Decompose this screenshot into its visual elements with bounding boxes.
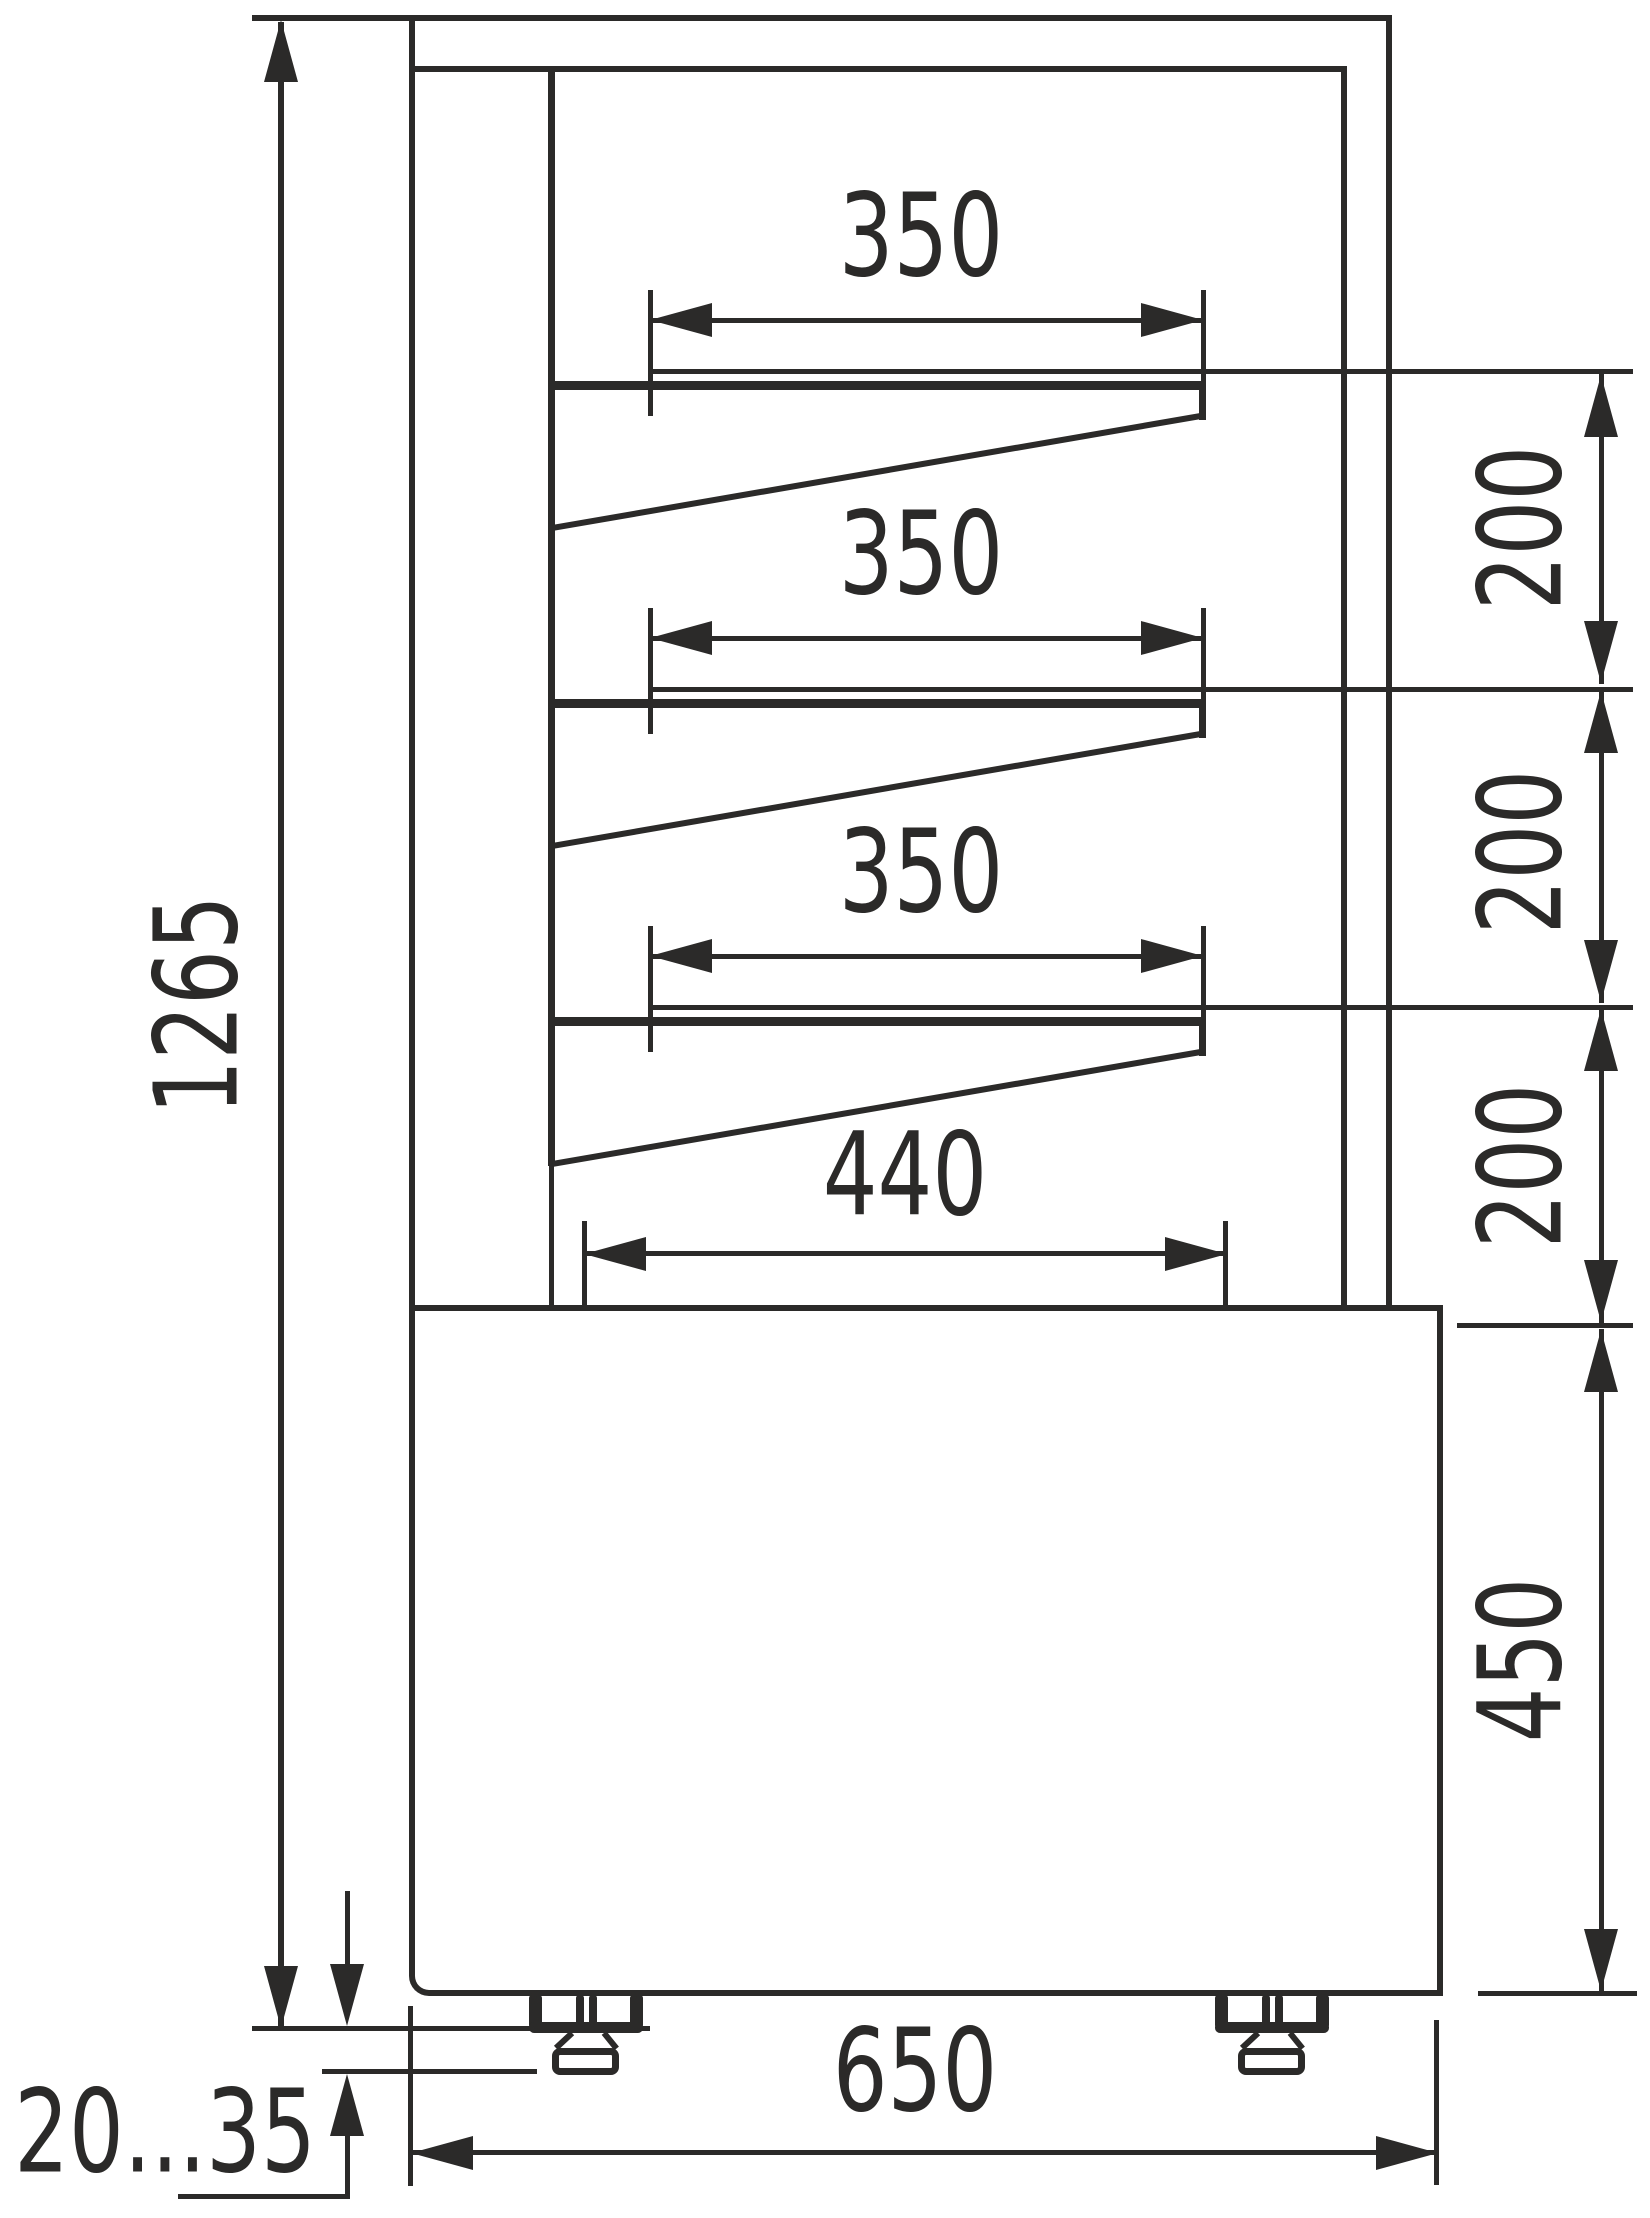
- dim-line: [650, 318, 1203, 323]
- dim-label-200-bottom: 200: [1465, 1084, 1580, 1249]
- arrow-right-icon: [1376, 2136, 1438, 2170]
- shelf-top-front-edge: [548, 381, 1206, 390]
- shelf-bottom-front-edge: [548, 1017, 1206, 1026]
- base-top-edge: [409, 1305, 1443, 1311]
- upper-arrow-shaft: [345, 1891, 350, 1969]
- foot-pad: [552, 2048, 619, 2075]
- arrow-right-icon: [1165, 1237, 1227, 1271]
- arrow-right-icon: [1141, 939, 1203, 973]
- arrow-right-icon: [1141, 303, 1203, 337]
- foot-bracket-bar: [529, 2022, 643, 2033]
- arrow-down-icon: [1584, 621, 1618, 683]
- dim-label-350-top: 350: [839, 180, 1004, 295]
- arrow-left-icon: [650, 621, 712, 655]
- arrow-left-icon: [584, 1237, 646, 1271]
- dim-line-450: [1599, 1329, 1604, 1991]
- shelf-top-surface-line: [650, 369, 1633, 374]
- arrow-left-icon: [650, 939, 712, 973]
- arrow-down-icon: [1584, 1929, 1618, 1991]
- inner-left-wall-lower: [549, 1160, 554, 1310]
- lower-arrow-shaft: [345, 2132, 350, 2198]
- shelf-bottom-surface-line: [650, 1005, 1633, 1010]
- dim-line: [278, 22, 284, 2028]
- dim-line: [411, 2150, 1438, 2155]
- dim-label-200-top: 200: [1465, 446, 1580, 611]
- arrow-up-icon: [264, 20, 298, 82]
- adjustable-foot-right: [1215, 1995, 1329, 2085]
- dimension-drawing-canvas: 350 350 350 440: [0, 0, 1650, 2218]
- cabinet-top-edge: [252, 15, 1392, 21]
- arrow-down-icon: [264, 1966, 298, 2028]
- arrow-left-icon: [650, 303, 712, 337]
- extension-base-bottom: [1478, 1991, 1637, 1996]
- arrow-up-icon: [1584, 375, 1618, 437]
- dim-label-20-35: 20...35: [14, 2076, 316, 2191]
- arrow-up-icon: [1584, 1009, 1618, 1071]
- inner-left-wall: [548, 66, 555, 1166]
- arrow-up-icon: [1584, 691, 1618, 753]
- dim-line: [584, 1251, 1227, 1256]
- outer-left-wall: [409, 15, 415, 1965]
- dim-label-440: 440: [823, 1119, 988, 1234]
- arrow-left-icon: [411, 2136, 473, 2170]
- dim-label-650: 650: [833, 2015, 998, 2130]
- arrow-up-icon: [330, 2074, 364, 2136]
- dim-line: [650, 954, 1203, 959]
- dim-label-200-middle: 200: [1465, 770, 1580, 935]
- shelf-middle-surface-line: [650, 687, 1633, 692]
- arrow-down-icon: [1584, 1260, 1618, 1322]
- arrow-up-icon: [1584, 1330, 1618, 1392]
- shelf-middle-front-edge: [548, 699, 1206, 708]
- dim-label-350-bottom: 350: [839, 816, 1004, 931]
- base-right-edge: [1437, 1305, 1443, 1993]
- arrow-down-icon: [330, 1964, 364, 2026]
- dim-label-1265: 1265: [141, 895, 256, 1115]
- extension-base-top: [1457, 1323, 1633, 1328]
- dim-line: [650, 636, 1203, 641]
- arrow-right-icon: [1141, 621, 1203, 655]
- dim-label-450: 450: [1465, 1578, 1580, 1743]
- dim-label-350-middle: 350: [839, 498, 1004, 613]
- arrow-down-icon: [1584, 940, 1618, 1002]
- outer-right-glass: [1386, 15, 1392, 1311]
- foot-pad: [1238, 2048, 1305, 2075]
- foot-bracket-bar: [1215, 2022, 1329, 2033]
- adjustable-foot-left: [529, 1995, 643, 2085]
